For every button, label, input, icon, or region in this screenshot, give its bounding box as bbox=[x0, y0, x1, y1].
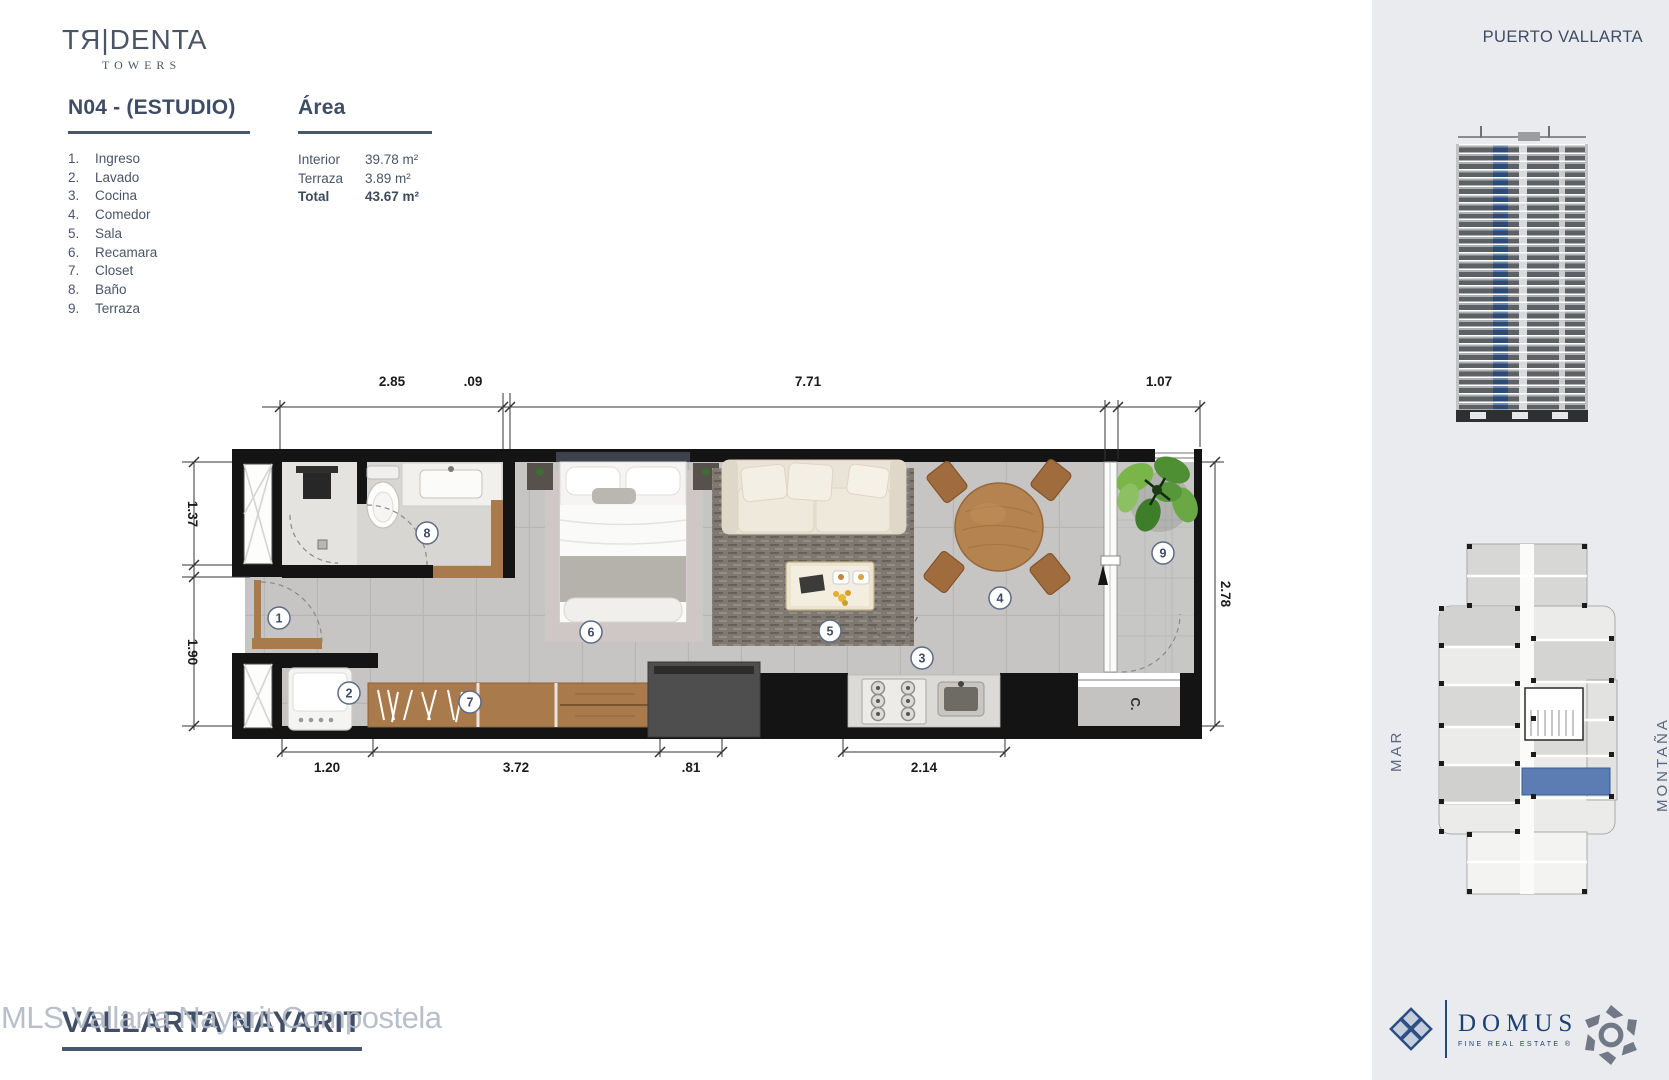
orientation-mar: MAR bbox=[1388, 730, 1405, 772]
location-label: PUERTO VALLARTA bbox=[1483, 28, 1643, 47]
room-number-9: 9 bbox=[1152, 542, 1174, 564]
mls-watermark: MLS Vallarta Nayarit Compostela bbox=[1, 1000, 442, 1036]
room-number-3: 3 bbox=[911, 647, 933, 669]
dim-bottom-1: 1.20 bbox=[314, 760, 340, 775]
room-number-1: 1 bbox=[268, 607, 290, 629]
svg-text:5: 5 bbox=[827, 625, 834, 639]
tower-elevation bbox=[1456, 130, 1588, 422]
svg-text:9: 9 bbox=[1160, 547, 1167, 561]
dim-top-3: 7.71 bbox=[795, 374, 822, 389]
dim-left-2: 1.90 bbox=[185, 639, 200, 665]
orientation-montana: MONTAÑA bbox=[1654, 717, 1669, 812]
domus-logo: DOMUS FINE REAL ESTATE ® bbox=[1388, 1000, 1578, 1058]
tower-body bbox=[1456, 144, 1588, 410]
tower-base bbox=[1456, 410, 1588, 422]
room-number-6: 6 bbox=[580, 621, 602, 643]
dim-right-1: 2.78 bbox=[1218, 581, 1233, 608]
domus-pinwheel-icon bbox=[1388, 1006, 1434, 1052]
dim-bottom-3: .81 bbox=[682, 760, 701, 775]
svg-text:4: 4 bbox=[997, 592, 1004, 606]
domus-tagline: FINE REAL ESTATE ® bbox=[1458, 1041, 1578, 1048]
sidebar: PUERTO VALLARTA MAR MONTAÑA bbox=[1372, 0, 1669, 1080]
dim-bottom-4: 2.14 bbox=[911, 760, 938, 775]
domus-divider bbox=[1445, 1000, 1447, 1058]
svg-text:8: 8 bbox=[424, 527, 431, 541]
room-number-8: 8 bbox=[416, 522, 438, 544]
dim-left-1: 1.37 bbox=[185, 501, 200, 527]
closet-c-label: C. bbox=[1128, 698, 1143, 711]
dim-top-4: 1.07 bbox=[1146, 374, 1172, 389]
svg-text:7: 7 bbox=[467, 696, 474, 710]
room-number-2: 2 bbox=[338, 682, 360, 704]
room-number-4: 4 bbox=[989, 587, 1011, 609]
highlighted-unit bbox=[1522, 768, 1610, 795]
sofa-area bbox=[712, 460, 914, 646]
tridenta-knot-icon bbox=[1580, 1004, 1642, 1066]
closet bbox=[368, 683, 648, 727]
tower-highlight-stripe bbox=[1493, 144, 1508, 410]
room-number-7: 7 bbox=[459, 691, 481, 713]
dim-top-1: 2.85 bbox=[379, 374, 406, 389]
building-floorplate bbox=[1427, 540, 1627, 900]
svg-text:1: 1 bbox=[276, 612, 283, 626]
tv-console bbox=[648, 662, 760, 737]
dim-top-2: .09 bbox=[464, 374, 483, 389]
svg-text:2: 2 bbox=[346, 687, 353, 701]
brochure-page: { "brand": { "name": "TЯ|DENTA", "sub": … bbox=[0, 0, 1669, 1080]
bed bbox=[527, 452, 719, 642]
room-number-5: 5 bbox=[819, 620, 841, 642]
dim-bottom-2: 3.72 bbox=[503, 760, 529, 775]
svg-text:3: 3 bbox=[919, 652, 926, 666]
tower-roof bbox=[1456, 130, 1588, 144]
domus-name: DOMUS bbox=[1458, 1010, 1578, 1038]
svg-text:6: 6 bbox=[588, 626, 595, 640]
